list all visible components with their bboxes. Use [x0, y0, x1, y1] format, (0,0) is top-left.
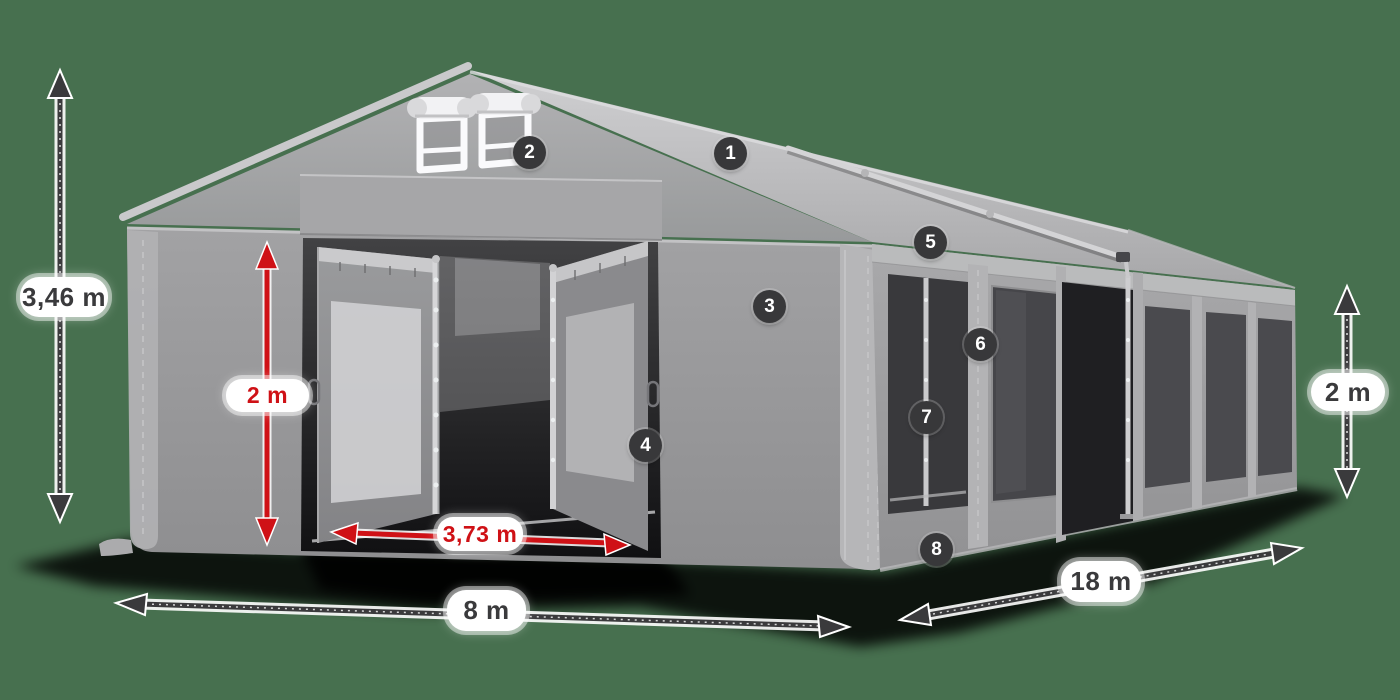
entrance-left-door [318, 247, 436, 543]
feature-marker-1[interactable]: 1 [714, 137, 747, 170]
feature-marker-2[interactable]: 2 [513, 136, 546, 169]
feature-marker-4[interactable]: 4 [629, 429, 662, 462]
feature-marker-7[interactable]: 7 [910, 401, 943, 434]
left-door-mesh-window [331, 301, 421, 503]
side-window-3 [1206, 312, 1246, 482]
right-door-pole [549, 264, 557, 509]
feature-marker-6[interactable]: 6 [964, 328, 997, 361]
side-window-2 [1145, 306, 1190, 488]
side-window-4 [1258, 318, 1292, 476]
feature-marker-3[interactable]: 3 [753, 290, 786, 323]
span-width-label: 8 m [447, 590, 526, 631]
entrance-opening [301, 238, 661, 558]
entrance-height-label: 2 m [226, 379, 309, 412]
side-height-label: 2 m [1311, 373, 1385, 411]
entrance-center-pole [432, 255, 440, 514]
entrance-right-door [553, 241, 648, 551]
length-label: 18 m [1061, 561, 1141, 602]
tent-illustration [0, 0, 1400, 700]
side-open-gap [1062, 282, 1133, 535]
total-height-label: 3,46 m [20, 277, 108, 317]
tent-product-visual: 3,46 m 2 m 3,73 m 8 m 18 m 2 m 1 2 3 4 5… [0, 0, 1400, 700]
entrance-width-label: 3,73 m [437, 517, 523, 551]
right-door-mesh-window [566, 303, 634, 482]
roof-vent-left [407, 97, 477, 170]
feature-marker-5[interactable]: 5 [914, 226, 947, 259]
feature-marker-8[interactable]: 8 [920, 533, 953, 566]
